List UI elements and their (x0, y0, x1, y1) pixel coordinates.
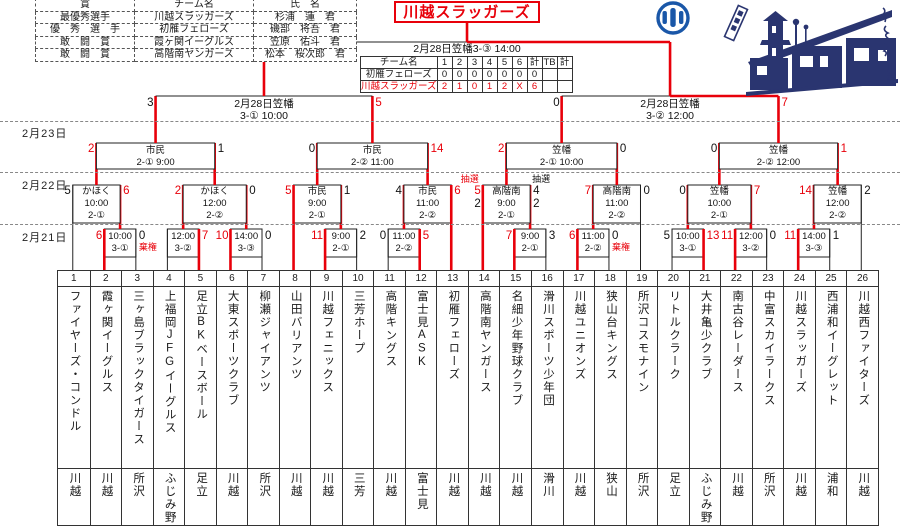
match-score: 2 (864, 186, 890, 197)
final-table-team: 初雁フェローズ (361, 69, 438, 81)
final-table-cell: 1 (482, 81, 497, 93)
final-table-cell: 0 (467, 81, 482, 93)
team-city: 川越 (384, 472, 396, 525)
lottery-note: 抽選 (461, 175, 479, 184)
team-city: 所沢 (258, 472, 270, 525)
award-cell: 霞ヶ関イーグルス (135, 36, 254, 49)
final-score-table: チーム名123456計TB計初雁フェローズ0000000川越スラッガーズ2101… (360, 56, 573, 93)
team-number: 8 (280, 271, 311, 287)
match-game-number: 2-② (582, 210, 652, 222)
match-venue: かほく (61, 186, 131, 198)
date-label-feb21: 2月21日 (22, 229, 67, 245)
team-name: 霞ヶ関イーグルス (100, 290, 112, 468)
forfeit-note: 棄権 (612, 243, 630, 252)
match-time: 10:00 (61, 198, 131, 210)
match-game-number: 3-② (148, 243, 218, 255)
final-table-header: 3 (467, 57, 482, 69)
team-city: 川越 (289, 472, 301, 525)
team-number: 3 (122, 271, 153, 287)
match-score: 5 (268, 186, 292, 197)
team-name: 大東スポーツクラブ (226, 290, 238, 468)
team-name: 滑川スポーツ少年団 (541, 290, 553, 468)
team-column: 19所沢コスモナイン所沢 (626, 271, 658, 525)
team-name: 三芳ホープ (352, 290, 364, 468)
award-cell: 磯部 将吾 君 (254, 24, 357, 37)
team-city: 川越 (573, 472, 585, 525)
final-table-cell: 0 (482, 69, 497, 81)
match-game-number: 2-① (61, 210, 131, 222)
match-score: 2 (480, 144, 504, 155)
team-name: 山田バリアンツ (289, 290, 301, 468)
team-number: 9 (311, 271, 342, 287)
team-number: 4 (154, 271, 185, 287)
header-artwork: 川越 (640, 0, 900, 96)
team-number: 6 (217, 271, 248, 287)
match-venue: 市民 (111, 145, 201, 157)
match-venue: 市民 (282, 186, 352, 198)
match-score: 11 (299, 231, 323, 242)
match-score: 2 (457, 199, 481, 210)
final-table-header: 計 (557, 57, 572, 69)
final-table-cell: 0 (512, 69, 527, 81)
team-city: 足立 (668, 472, 680, 525)
final-table-team: 川越スラッガーズ (361, 81, 438, 93)
match-score: 2 (157, 186, 181, 197)
team-city: 滑川 (541, 472, 553, 525)
awards-table: 賞チーム名氏 名最優秀選手川越スラッガーズ杉浦 蓮 君優 秀 選 手初雁フェロー… (35, 0, 357, 62)
team-column: 3三ヶ島ブラックタイガース所沢 (121, 271, 153, 525)
award-cell: 賞 (36, 0, 135, 11)
match-venue: 市民 (327, 145, 417, 157)
lottery-note: 抽選 (532, 175, 550, 184)
match-score: 3 (130, 98, 154, 109)
team-name: 中富スカイラークス (762, 290, 774, 468)
award-cell: 敢 闘 賞 (36, 49, 135, 62)
final-table-cell: 6 (527, 81, 542, 93)
award-cell: 最優秀選手 (36, 11, 135, 24)
final-table-cell: 0 (437, 69, 452, 81)
match-score: 0 (620, 144, 646, 155)
match-game-number: 2-② (803, 210, 873, 222)
final-table-cell: 0 (527, 69, 542, 81)
team-number: 24 (784, 271, 815, 287)
match-time: 12:00 (180, 198, 250, 210)
team-number: 23 (753, 271, 784, 287)
kawagoe-townscape-illustration: 川越 (746, 8, 898, 96)
match-score: 14 (788, 186, 812, 197)
team-column: 22南古谷レーダース川越 (720, 271, 752, 525)
team-name: 狭山台キングス (605, 290, 617, 468)
team-city: 川越 (100, 472, 112, 525)
match-venue: 高階南 (582, 186, 652, 198)
award-cell: 氏 名 (254, 0, 357, 11)
team-name: 柳瀬ジャイアンツ (258, 290, 270, 468)
match-score: 4 (378, 186, 402, 197)
team-city: 川越 (857, 472, 869, 525)
team-number: 15 (500, 271, 531, 287)
team-column: 6大東スポーツクラブ川越 (216, 271, 248, 525)
match-score: 10 (204, 231, 228, 242)
match-game-number: 3-① (653, 243, 723, 255)
final-table-cell (542, 81, 557, 93)
date-separator (0, 224, 900, 225)
team-column: 20リトルクラーク足立 (657, 271, 689, 525)
team-column: 17川越ユニオンズ川越 (563, 271, 595, 525)
match-venue: 高階南 (471, 186, 541, 198)
final-table-cell: 1 (452, 81, 467, 93)
team-column: 26川越西ファイターズ川越 (846, 271, 878, 525)
final-table-cell (542, 69, 557, 81)
match-game-number: 2-① (282, 210, 352, 222)
date-separator (0, 121, 900, 122)
match-score: 5 (646, 231, 670, 242)
award-cell: 杉浦 蓮 君 (254, 11, 357, 24)
match-game-number: 2-① 10:00 (517, 157, 607, 169)
team-column: 12富士見ASK富士見 (405, 271, 437, 525)
team-name: 富士見ASK (415, 290, 427, 468)
team-number: 21 (690, 271, 721, 287)
team-column: 9川越フェニックス川越 (310, 271, 342, 525)
team-name: ファイヤーズ・コンドル (68, 290, 80, 468)
match-score: 1 (833, 231, 859, 242)
team-city: 川越 (478, 472, 490, 525)
team-name: 高階南ヤンガース (478, 290, 490, 468)
team-name: 名細少年野球クラブ (510, 290, 522, 468)
team-column: 7柳瀬ジャイアンツ所沢 (247, 271, 279, 525)
team-column: 16滑川スポーツ少年団滑川 (531, 271, 563, 525)
semifinal-label: 3-② 12:00 (615, 110, 725, 122)
banner-icon (725, 5, 748, 40)
match-score: 0 (662, 186, 686, 197)
city-emblem-icon (658, 3, 688, 33)
tournament-sheet: { "champion": {"name": "川越スラッガーズ"}, "fin… (0, 0, 900, 506)
team-column: 5足立BKベースボール足立 (184, 271, 216, 525)
award-cell: 敢 闘 賞 (36, 36, 135, 49)
match-venue: 市民 (393, 186, 463, 198)
final-table-cell: 0 (452, 69, 467, 81)
team-name: 三ヶ島ブラックタイガース (132, 290, 144, 468)
team-column: 4上福岡JFGイーグルスふじみ野 (153, 271, 185, 525)
team-column: 25西浦和イーグレット浦和 (815, 271, 847, 525)
match-game-number: 2-① (684, 210, 754, 222)
match-score: 6 (551, 231, 575, 242)
team-city: 三芳 (352, 472, 364, 525)
match-score: 0 (291, 144, 315, 155)
team-city: 川越 (731, 472, 743, 525)
match-score: 0 (362, 231, 386, 242)
semifinal-label: 2月28日笠幡 (209, 98, 319, 110)
match-game-number: 2-① (495, 243, 565, 255)
match-game-number: 3-③ (779, 243, 849, 255)
match-game-number: 2-② 12:00 (733, 157, 823, 169)
final-table-cell (557, 69, 572, 81)
team-name: 上福岡JFGイーグルス (163, 290, 175, 468)
team-number: 22 (721, 271, 752, 287)
match-game-number: 2-② (369, 243, 439, 255)
team-name: 川越スラッガーズ (794, 290, 806, 468)
match-score: 7 (567, 186, 591, 197)
final-table-cell (557, 81, 572, 93)
team-column: 1ファイヤーズ・コンドル川越 (58, 271, 90, 525)
match-time: 11:00 (582, 198, 652, 210)
team-column: 23中富スカイラークス所沢 (752, 271, 784, 525)
match-game-number: 2-① 9:00 (111, 157, 201, 169)
final-table-header: 1 (437, 57, 452, 69)
semifinal-label: 2月28日笠幡 (615, 98, 725, 110)
team-number: 10 (343, 271, 374, 287)
match-game-number: 3-③ (211, 243, 281, 255)
award-cell: 川越スラッガーズ (135, 11, 254, 24)
match-score: 1 (841, 144, 867, 155)
match-game-number: 2-① (471, 210, 541, 222)
team-city: 川越 (321, 472, 333, 525)
team-name: 川越西ファイターズ (857, 290, 869, 468)
match-game-number: 2-② (180, 210, 250, 222)
team-city: 川越 (510, 472, 522, 525)
match-score: 1 (344, 186, 370, 197)
team-column: 13初雁フェローズ川越 (436, 271, 468, 525)
team-number: 18 (595, 271, 626, 287)
team-name: 川越ユニオンズ (573, 290, 585, 468)
artwork-caption: 川越 (885, 62, 897, 83)
team-city: ふじみ野 (163, 472, 175, 525)
match-game-number: 2-② (393, 210, 463, 222)
team-number: 11 (374, 271, 405, 287)
team-city: 浦和 (825, 472, 837, 525)
match-score: 0 (536, 98, 560, 109)
match-venue: 笠幡 (684, 186, 754, 198)
match-score: 5 (423, 231, 449, 242)
match-score: 11 (772, 231, 796, 242)
semifinal-label: 3-① 10:00 (209, 110, 319, 122)
award-cell: チーム名 (135, 0, 254, 11)
team-number: 20 (658, 271, 689, 287)
team-number: 2 (91, 271, 122, 287)
award-cell: 初雁フェローズ (135, 24, 254, 37)
final-table-header: 計 (527, 57, 542, 69)
team-number: 13 (437, 271, 468, 287)
award-cell: 高階南ヤンガース (135, 49, 254, 62)
date-label-feb23: 2月23日 (22, 125, 67, 141)
team-column: 10三芳ホープ三芳 (342, 271, 374, 525)
final-table-cell: X (512, 81, 527, 93)
final-match-label: 2月28日笠幡3-③ 14:00 (367, 43, 567, 55)
match-score: 11 (709, 231, 733, 242)
match-score: 7 (754, 186, 780, 197)
final-table-header: 4 (482, 57, 497, 69)
champion-box: 川越スラッガーズ (394, 1, 540, 23)
team-number: 12 (406, 271, 437, 287)
team-column: 11高階キングス川越 (373, 271, 405, 525)
team-column: 18狭山台キングス狭山 (594, 271, 626, 525)
award-cell: 優 秀 選 手 (36, 24, 135, 37)
team-number: 14 (469, 271, 500, 287)
team-column: 15名細少年野球クラブ川越 (499, 271, 531, 525)
match-time: 9:00 (282, 198, 352, 210)
match-score: 6 (123, 186, 149, 197)
match-score: 0 (265, 231, 291, 242)
match-venue: 笠幡 (517, 145, 607, 157)
match-score: 1 (218, 144, 244, 155)
team-table: 1ファイヤーズ・コンドル川越2霞ヶ関イーグルス川越3三ヶ島ブラックタイガース所沢… (57, 270, 879, 526)
final-table-cell: 2 (437, 81, 452, 93)
final-table-header: TB (542, 57, 557, 69)
team-number: 7 (248, 271, 279, 287)
date-separator (0, 172, 900, 173)
team-city: 富士見 (415, 472, 427, 525)
match-score: 2 (533, 199, 559, 210)
team-name: 所沢コスモナイン (636, 290, 648, 468)
team-city: 足立 (195, 472, 207, 525)
match-score: 4 (533, 186, 559, 197)
match-venue: 笠幡 (733, 145, 823, 157)
team-number: 17 (564, 271, 595, 287)
team-name: 川越フェニックス (321, 290, 333, 468)
team-column: 2霞ヶ関イーグルス川越 (90, 271, 122, 525)
team-name: リトルクラーク (668, 290, 680, 468)
match-venue: 笠幡 (803, 186, 873, 198)
team-column: 14高階南ヤンガース川越 (468, 271, 500, 525)
team-number: 25 (816, 271, 847, 287)
team-city: 川越 (68, 472, 80, 525)
team-name: 南古谷レーダース (731, 290, 743, 468)
match-score: 5 (457, 186, 481, 197)
match-time: 12:00 (803, 198, 873, 210)
team-column: 8山田バリアンツ川越 (279, 271, 311, 525)
award-cell: 松本 桜次郎 君 (254, 49, 357, 62)
team-city: 川越 (447, 472, 459, 525)
award-cell: 笠原 佑斗 君 (254, 36, 357, 49)
team-name: 大井亀少クラブ (699, 290, 711, 468)
team-city: 川越 (794, 472, 806, 525)
match-time: 11:00 (393, 198, 463, 210)
final-table-header: 5 (497, 57, 512, 69)
final-table-header: チーム名 (361, 57, 438, 69)
final-table-cell: 0 (497, 69, 512, 81)
team-city: 所沢 (762, 472, 774, 525)
match-score: 14 (431, 144, 457, 155)
team-name: 初雁フェローズ (447, 290, 459, 468)
team-name: 高階キングス (384, 290, 396, 468)
team-number: 16 (532, 271, 563, 287)
team-city: 所沢 (636, 472, 648, 525)
team-column: 24川越スラッガーズ川越 (783, 271, 815, 525)
match-score: 7 (488, 231, 512, 242)
match-game-number: 2-② 11:00 (327, 157, 417, 169)
team-city: 川越 (226, 472, 238, 525)
match-time: 10:00 (684, 198, 754, 210)
match-venue: かほく (180, 186, 250, 198)
team-column: 21大井亀少クラブふじみ野 (689, 271, 721, 525)
team-name: 足立BKベースボール (195, 290, 207, 468)
final-table-cell: 0 (467, 69, 482, 81)
match-score: 0 (612, 231, 638, 242)
match-score: 5 (47, 186, 71, 197)
team-name: 西浦和イーグレット (825, 290, 837, 468)
match-score: 5 (375, 98, 401, 109)
team-city: 所沢 (132, 472, 144, 525)
team-number: 19 (627, 271, 658, 287)
team-city: 狭山 (605, 472, 617, 525)
final-table-header: 6 (512, 57, 527, 69)
team-number: 26 (847, 271, 878, 287)
team-number: 1 (58, 271, 90, 287)
match-score: 0 (693, 144, 717, 155)
match-game-number: 2-① (306, 243, 376, 255)
match-time: 9:00 (471, 198, 541, 210)
team-number: 5 (185, 271, 216, 287)
team-city: ふじみ野 (699, 472, 711, 525)
match-score: 6 (78, 231, 102, 242)
final-table-header: 2 (452, 57, 467, 69)
final-table-cell: 2 (497, 81, 512, 93)
match-score: 7 (781, 98, 807, 109)
match-game-number: 3-② (716, 243, 786, 255)
match-score: 2 (70, 144, 94, 155)
